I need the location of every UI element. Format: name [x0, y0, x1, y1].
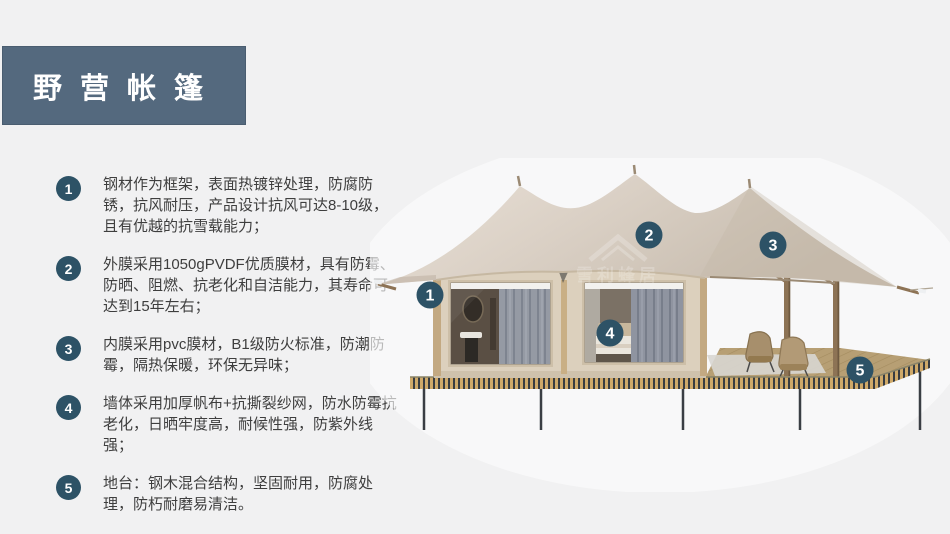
marker-1: 1: [417, 282, 444, 309]
slide: 野营帐篷 1 钢材作为框架，表面热镀锌处理，防腐防锈，抗风耐压，产品设计抗风可达…: [0, 0, 950, 534]
feature-item-4: 4 墙体采用加厚帆布+抗撕裂纱网，防水防霉抗老化，日晒牢度高，耐候性强，防紫外线…: [56, 393, 402, 456]
feature-badge-2: 2: [56, 256, 81, 281]
feature-item-1: 1 钢材作为框架，表面热镀锌处理，防腐防锈，抗风耐压，产品设计抗风可达8-10级…: [56, 174, 402, 237]
svg-text:雪利蜂居: 雪利蜂居: [576, 265, 660, 285]
curtain-2: [631, 289, 683, 362]
curtain-1: [499, 289, 550, 364]
feature-text-2: 外膜采用1050gPVDF优质膜材，具有防霉、防晒、阻燃、抗老化和自洁能力，其寿…: [103, 254, 402, 317]
page-title-bar: 野营帐篷: [2, 46, 246, 125]
svg-text:5: 5: [856, 363, 865, 380]
feature-text-5: 地台：钢木混合结构，坚固耐用，防腐处理，防朽耐磨易清洁。: [103, 473, 402, 515]
feature-badge-5: 5: [56, 475, 81, 500]
marker-4: 4: [597, 320, 624, 347]
window-bathroom: [448, 280, 553, 367]
tent-illustration: 雪利蜂居 1 2 3 4 5: [370, 158, 950, 492]
marker-5: 5: [847, 357, 874, 384]
feature-item-5: 5 地台：钢木混合结构，坚固耐用，防腐处理，防朽耐磨易清洁。: [56, 473, 402, 515]
feature-text-1: 钢材作为框架，表面热镀锌处理，防腐防锈，抗风耐压，产品设计抗风可达8-10级，且…: [103, 174, 402, 237]
svg-text:3: 3: [769, 238, 778, 255]
feature-item-3: 3 内膜采用pvc膜材，B1级防火标准，防潮防霉，隔热保暖，环保无异味；: [56, 334, 402, 376]
window-bedroom: [582, 280, 686, 365]
page-title: 野营帐篷: [33, 65, 221, 107]
feature-badge-1: 1: [56, 176, 81, 201]
feature-badge-4: 4: [56, 395, 81, 420]
svg-text:1: 1: [426, 288, 435, 305]
sink: [460, 332, 482, 338]
marker-3: 3: [760, 232, 787, 259]
svg-text:2: 2: [645, 228, 654, 245]
feature-list: 1 钢材作为框架，表面热镀锌处理，防腐防锈，抗风耐压，产品设计抗风可达8-10级…: [56, 174, 402, 532]
feature-text-4: 墙体采用加厚帆布+抗撕裂纱网，防水防霉抗老化，日晒牢度高，耐候性强，防紫外线强；: [103, 393, 402, 456]
feature-item-2: 2 外膜采用1050gPVDF优质膜材，具有防霉、防晒、阻燃、抗老化和自洁能力，…: [56, 254, 402, 317]
feature-text-3: 内膜采用pvc膜材，B1级防火标准，防潮防霉，隔热保暖，环保无异味；: [103, 334, 402, 376]
svg-text:4: 4: [606, 326, 615, 343]
marker-2: 2: [636, 222, 663, 249]
feature-badge-3: 3: [56, 336, 81, 361]
